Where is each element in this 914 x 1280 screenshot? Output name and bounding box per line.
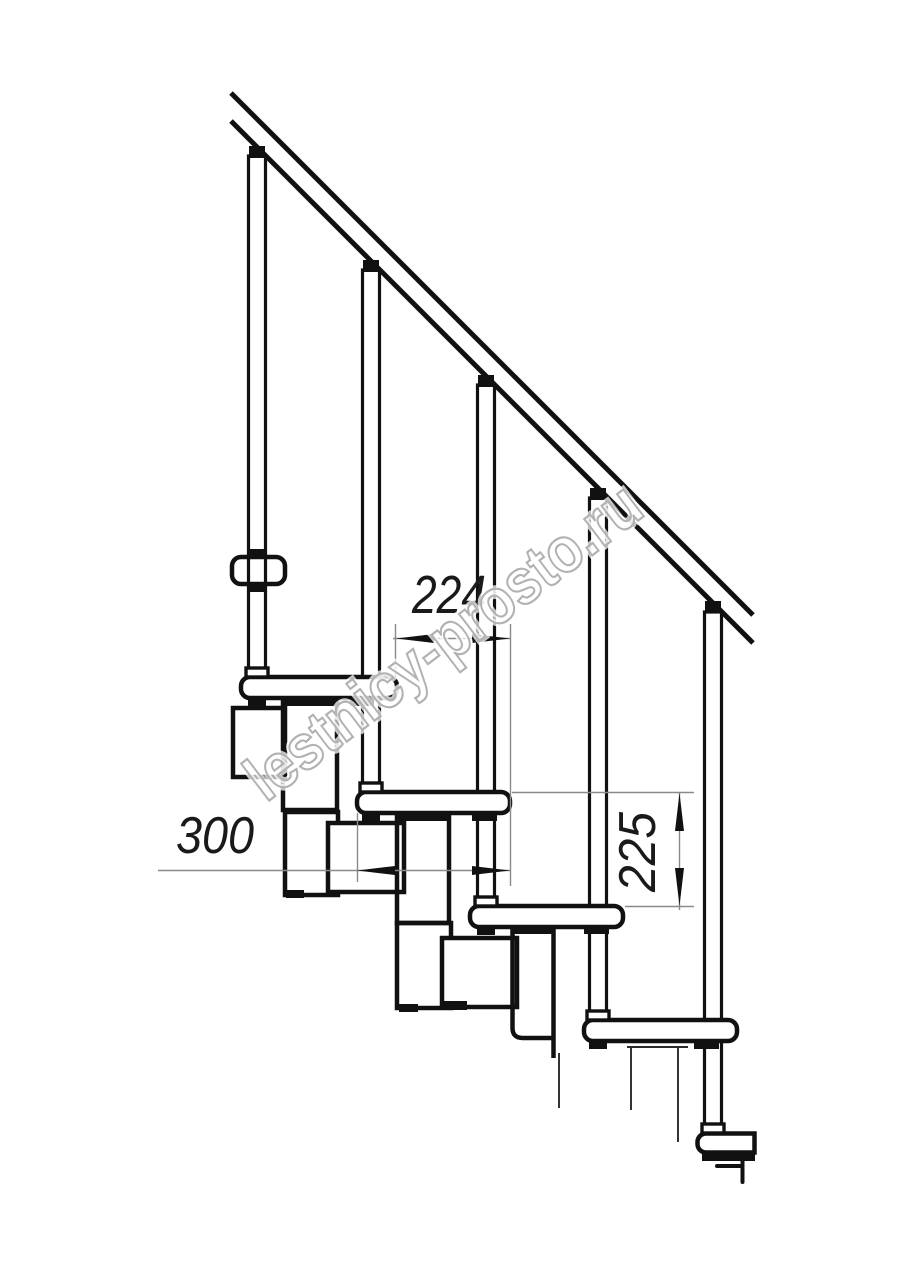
module-box-3 xyxy=(442,938,517,1007)
module-box-3-tab xyxy=(443,1001,467,1010)
dim-300-label: 300 xyxy=(176,807,254,865)
staircase-elevation-svg: 224 300 225 lestnicy-prosto.ru lestnicy-… xyxy=(0,0,914,1280)
tread-2-right-tab xyxy=(472,813,497,821)
bracket-top-tab xyxy=(249,549,264,557)
baluster-2-collar xyxy=(360,783,382,792)
tread-5-bottom-strip xyxy=(702,1152,755,1161)
baluster-1-rail-joint xyxy=(249,146,265,158)
module-ext-1-tab xyxy=(286,890,304,898)
tread-2 xyxy=(357,792,510,813)
baluster-2-rail-joint xyxy=(363,260,379,272)
tread-5-partial xyxy=(698,1134,755,1153)
baluster-1 xyxy=(249,156,266,677)
module-box-2 xyxy=(328,823,404,892)
dim-225-arrow-up xyxy=(675,793,684,831)
tread-4 xyxy=(584,1020,737,1041)
tread-4-left-tab xyxy=(589,1041,607,1049)
dim-225-label: 225 xyxy=(609,811,667,893)
tread-1-left-tab xyxy=(248,698,266,706)
baluster-5-collar xyxy=(702,1124,724,1133)
tread-5-step-lines xyxy=(717,1159,743,1182)
tread-4-right-tab xyxy=(694,1041,719,1049)
module-2-top-strip xyxy=(397,812,449,821)
module-ext-2-tab xyxy=(399,1004,418,1012)
baluster-3-collar xyxy=(475,897,497,906)
baluster-5 xyxy=(705,612,722,1133)
tread-2-left-tab xyxy=(362,813,380,821)
baluster-4-collar xyxy=(587,1011,609,1020)
bracket-bottom-tab xyxy=(248,584,266,592)
tread-3-left-tab xyxy=(477,927,495,935)
dim-225-arrow-down xyxy=(675,868,684,906)
staircase-drawing-canvas: 224 300 225 lestnicy-prosto.ru lestnicy-… xyxy=(0,0,914,1280)
baluster-5-rail-joint xyxy=(705,601,721,613)
baluster-4 xyxy=(590,498,607,1020)
module-3-top-strip xyxy=(512,926,554,934)
baluster-3-rail-joint xyxy=(478,375,494,387)
tread-3 xyxy=(470,906,623,927)
tread-3-right-tab xyxy=(584,927,609,934)
baluster-1-collar xyxy=(246,668,268,677)
